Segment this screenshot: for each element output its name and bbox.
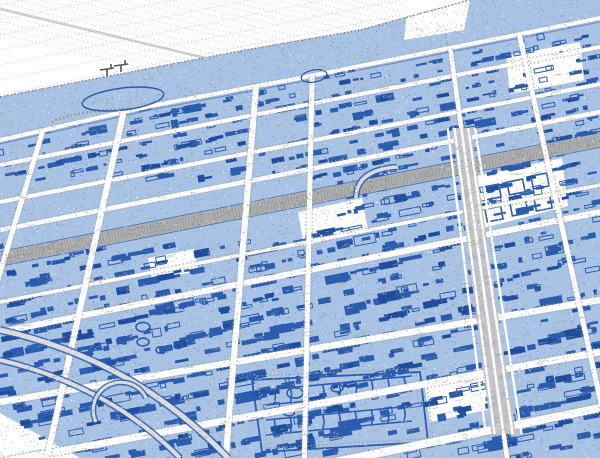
map-viewport[interactable]	[0, 0, 600, 458]
map-canvas[interactable]	[0, 0, 600, 458]
